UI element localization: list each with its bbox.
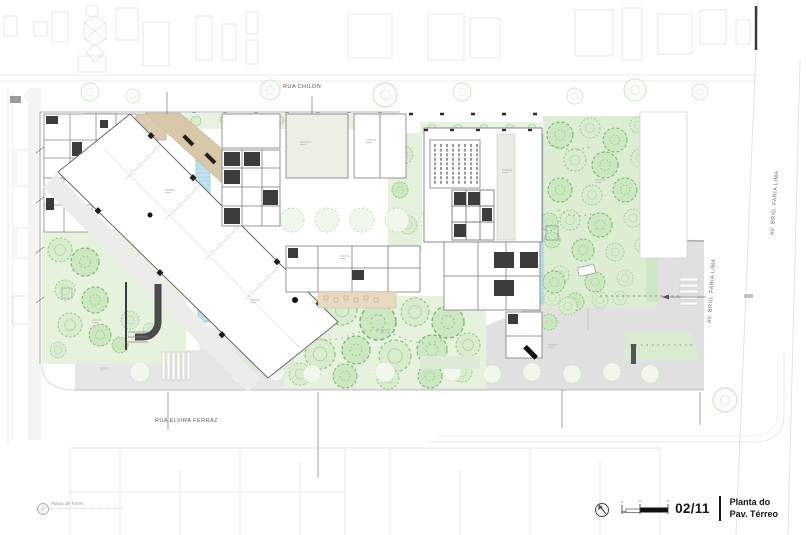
title-divider <box>719 496 721 521</box>
lobby-strip <box>497 134 515 240</box>
neighbor-lot <box>640 112 687 258</box>
terrace-tan <box>318 292 396 308</box>
street-label-rua-chilon: RUA CHILON <box>283 84 321 90</box>
logo-text: Planta de Torres <box>51 501 123 509</box>
logo: Planta de Torres <box>34 501 123 509</box>
sheet-page-number: 02/11 <box>675 501 710 516</box>
rooms-center <box>222 114 406 226</box>
context-buildings-top <box>4 5 750 72</box>
context-street-top <box>0 75 758 81</box>
street-label-rua-elvira-ferraz: RUA ELVIRA FERRAZ <box>155 418 218 424</box>
sheet-title-line1: Planta do <box>730 497 778 509</box>
title-block: 02/11 Planta do Pav. Térreo <box>675 496 778 521</box>
north-arrow-icon <box>596 504 609 517</box>
avenue-right <box>736 0 800 535</box>
site-plan-drawing <box>0 0 806 535</box>
sheet-title: Planta do Pav. Térreo <box>730 497 778 520</box>
sheet-title-line2: Pav. Térreo <box>730 509 778 521</box>
floor-plan-sheet: RUA CHILON RUA ELVIRA FERRAZ AV. BRIG. F… <box>0 0 806 535</box>
context-trees-top <box>25 79 708 107</box>
auditorium-room <box>430 140 480 188</box>
auditorium-building <box>424 128 542 242</box>
scale-bar-icon <box>621 500 669 514</box>
